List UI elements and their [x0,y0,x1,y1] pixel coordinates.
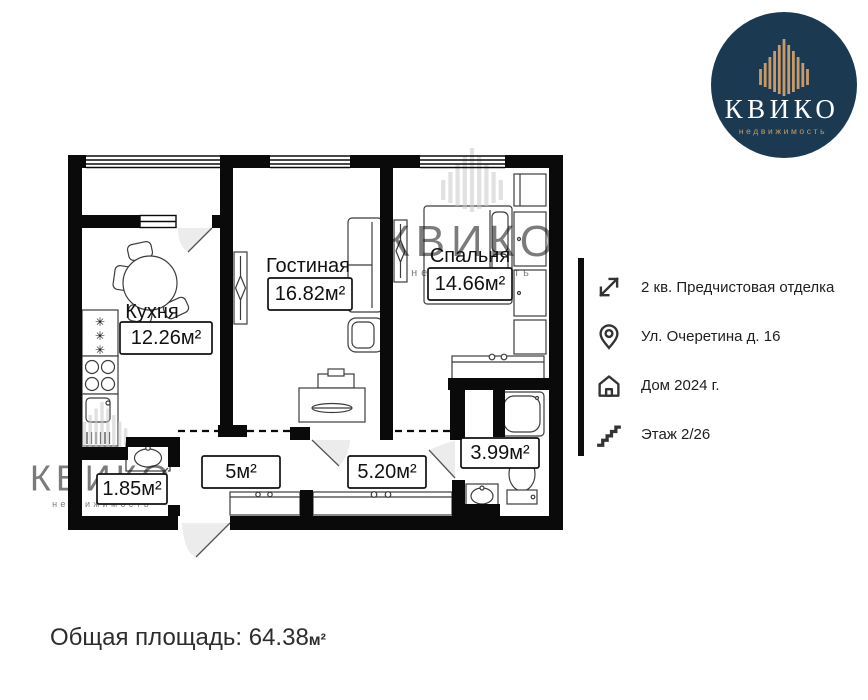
svg-text:12.26м²: 12.26м² [131,327,202,349]
brand-logo: КВИКО недвижимость [711,12,857,158]
svg-text:5.20м²: 5.20м² [357,461,417,483]
location-pin-icon [594,321,624,351]
svg-text:14.66м²: 14.66м² [435,273,506,295]
building-bars-icon [759,39,809,96]
shower [500,392,544,436]
stairs-icon [594,419,624,449]
area-badge-living: 16.82м² [268,278,352,310]
info-label-year: Дом 2024 г. [641,377,720,394]
svg-text:1.85м²: 1.85м² [102,478,162,500]
brand-tagline: недвижимость [739,126,827,136]
info-row-floor: Этаж 2/26 [594,417,862,451]
info-row-address: Ул. Очеретина д. 16 [594,319,862,353]
info-row-finishing: 2 кв. Предчистовая отделка [594,270,862,304]
info-divider [578,258,584,456]
room-label-bedroom: Спальня [430,245,510,267]
total-area: Общая площадь: 64.38м² [50,624,326,652]
svg-text:5м²: 5м² [225,461,257,483]
bedroom-counter [452,354,544,380]
room-label-kitchen: Кухня [125,301,179,323]
sofa [348,218,382,312]
tv-stand [299,369,365,422]
living-room-door [312,440,350,466]
info-label-finishing: 2 кв. Предчистовая отделка [641,279,834,296]
kitchen-cabinet: ✳ ✳ ✳ [82,310,118,357]
entrance-door [182,523,230,557]
house-icon [594,370,624,400]
area-badge-corridor: 5.20м² [348,456,426,488]
svg-text:16.82м²: 16.82м² [275,283,346,305]
info-row-year: Дом 2024 г. [594,368,862,402]
room-label-living: Гостиная [266,255,350,277]
info-label-floor: Этаж 2/26 [641,426,710,443]
shoe-cabinet [230,492,300,515]
svg-text:✳: ✳ [95,343,105,357]
armchair [348,318,384,352]
balcony-door [178,228,212,252]
info-label-address: Ул. Очеретина д. 16 [641,328,780,345]
area-badge-wc: 1.85м² [97,474,167,504]
area-badge-bedroom: 14.66м² [428,268,512,300]
svg-text:3.99м²: 3.99м² [470,442,530,464]
bathroom-door [429,441,455,478]
info-panel: 2 кв. Предчистовая отделка Ул. Очеретина… [594,258,862,451]
total-area-label: Общая площадь: [50,624,242,651]
total-area-value: 64.38 [242,624,309,651]
radiator [234,252,247,324]
expand-arrows-icon [594,272,624,302]
area-badge-kitchen: 12.26м² [120,322,212,354]
page: КВИКО недвижимость ✳ ✳ ✳ [0,0,868,700]
brand-name: КВИКО [725,94,840,124]
area-badge-bathroom: 3.99м² [461,438,539,468]
svg-text:✳: ✳ [95,315,105,329]
kitchen-stove [82,356,118,394]
corridor-wardrobe [313,492,452,515]
total-area-unit: м² [309,632,326,649]
svg-text:✳: ✳ [95,329,105,343]
area-badge-hall: 5м² [202,456,280,488]
